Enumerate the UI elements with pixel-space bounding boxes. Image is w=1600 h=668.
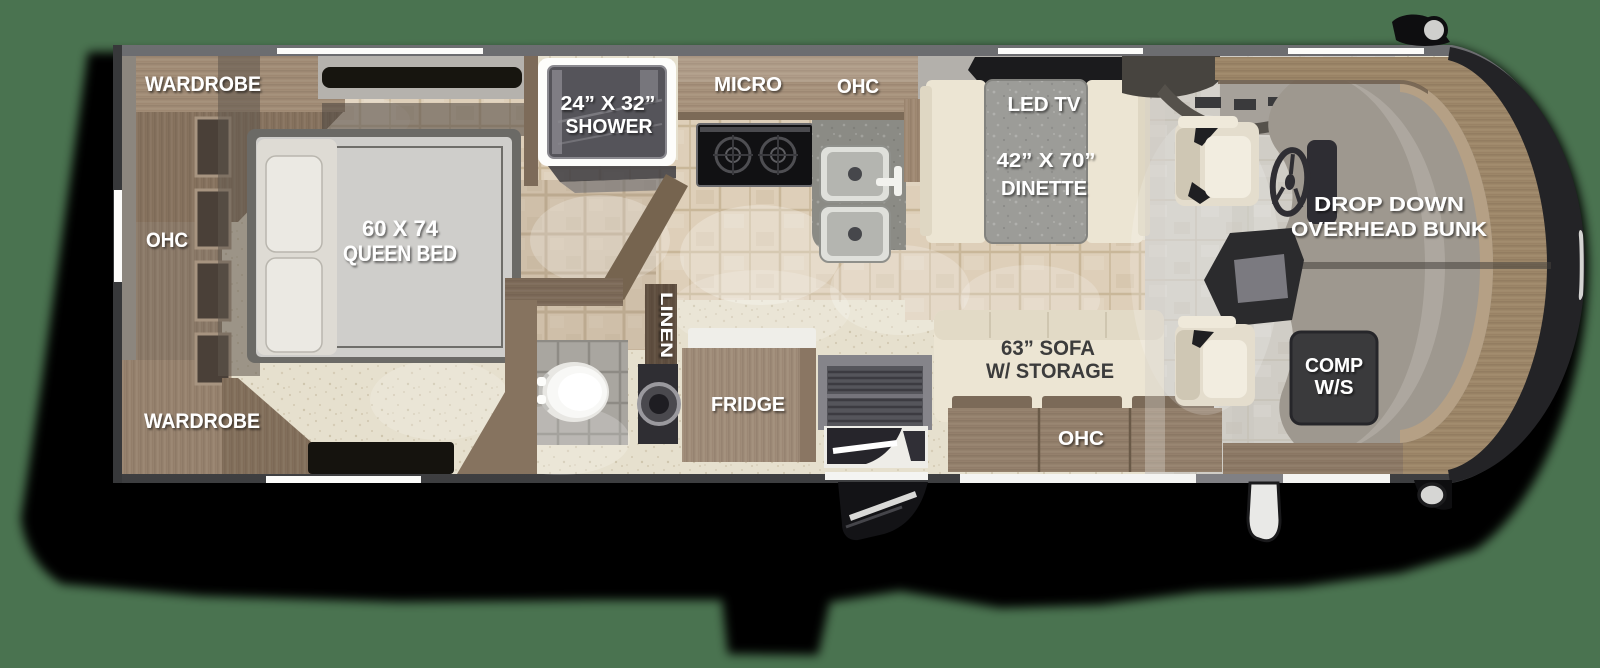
svg-text:COMP: COMP (1305, 355, 1363, 377)
svg-text:OHC: OHC (1058, 428, 1104, 450)
svg-text:QUEEN BED: QUEEN BED (343, 241, 457, 266)
svg-text:SHOWER: SHOWER (566, 116, 654, 138)
svg-text:LED TV: LED TV (1008, 94, 1082, 116)
svg-text:W/S: W/S (1315, 377, 1354, 399)
svg-text:FRIDGE: FRIDGE (711, 394, 785, 416)
svg-text:42” X 70”: 42” X 70” (997, 150, 1096, 172)
svg-text:LINEN: LINEN (657, 292, 676, 358)
svg-text:DINETTE: DINETTE (1001, 178, 1087, 200)
svg-text:24” X 32”: 24” X 32” (561, 93, 656, 115)
svg-text:W/ STORAGE: W/ STORAGE (986, 360, 1114, 383)
svg-text:WARDROBE: WARDROBE (145, 73, 261, 96)
svg-text:60 X 74: 60 X 74 (362, 216, 439, 241)
svg-text:OVERHEAD BUNK: OVERHEAD BUNK (1291, 219, 1488, 241)
svg-text:63” SOFA: 63” SOFA (1001, 337, 1095, 360)
svg-text:OHC: OHC (146, 229, 188, 252)
svg-text:WARDROBE: WARDROBE (144, 410, 260, 433)
svg-text:OHC: OHC (837, 76, 879, 98)
svg-text:MICRO: MICRO (714, 74, 782, 96)
svg-text:DROP DOWN: DROP DOWN (1314, 194, 1464, 216)
